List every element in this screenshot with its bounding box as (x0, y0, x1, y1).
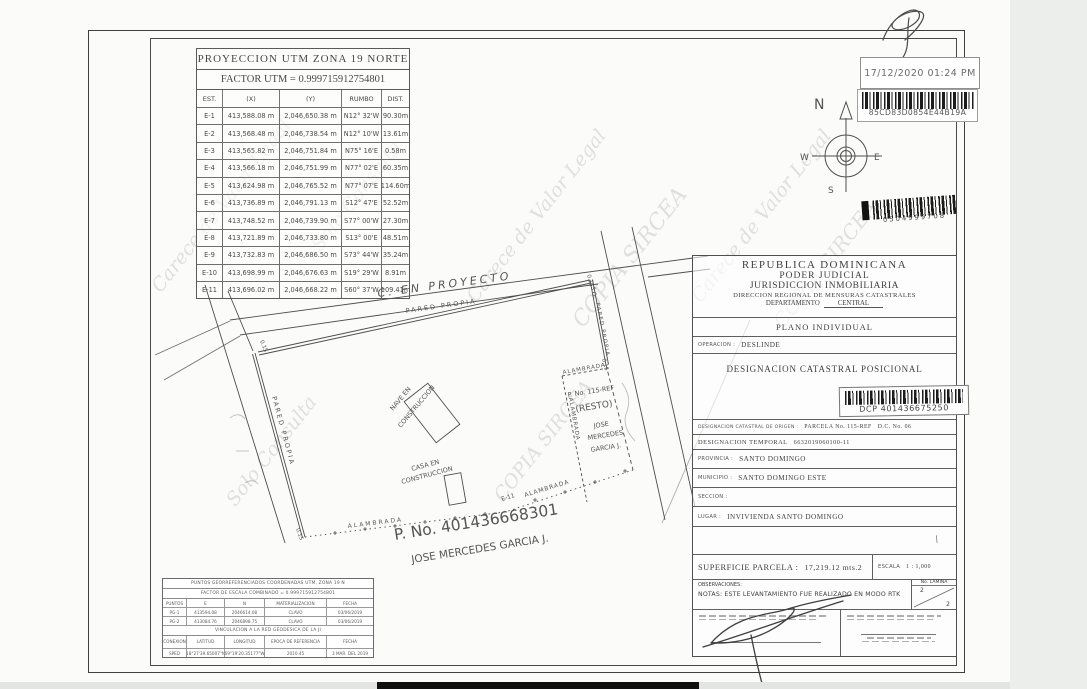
institution-header: REPUBLICA DOMINICANA PODER JUDICIAL JURI… (693, 256, 956, 318)
origen-row: DESIGNACION CATASTRAL DE ORIGEN : PARCEL… (693, 420, 956, 435)
geo-cell: 413594.08 (187, 608, 225, 617)
escala-label: ESCALA (878, 564, 900, 570)
barcode-start-block (861, 201, 869, 220)
geo-cell: 2010.45 (265, 649, 327, 657)
geo-cell: CLAVO (265, 617, 327, 626)
provincia-row: PROVINCIA : SANTO DOMINGO (693, 450, 956, 469)
dcp-section: DESIGNACION CATASTRAL POSICIONAL DCP 401… (693, 354, 956, 420)
seccion-label: SECCION : (698, 494, 727, 500)
scan-artifact-black-bar (377, 682, 699, 689)
street-name-label: C. EN PROYECTO (377, 269, 513, 300)
table-row: E-4413,566.18 m2,046,751.99 mN77° 02'E60… (197, 159, 409, 176)
station-marker-label: E-11 (501, 492, 516, 503)
seccion-row: SECCION : (693, 488, 956, 507)
geo-factor: FACTOR DE ESCALA COMBINADO = 0.999715912… (163, 589, 373, 599)
table-cell: 413,624.98 m (223, 177, 280, 194)
direccion-regional: DIRECCION REGIONAL DE MENSURAS CATASTRAL… (693, 292, 956, 299)
geo-header-row-2: CONEXION LATITUD LONGITUD EPOCA DE REFER… (163, 636, 373, 649)
departamento-value: CENTRAL (824, 300, 883, 308)
table-cell: 2,046,751.84 m (280, 142, 342, 159)
geo-header-cell: PUNTOS (163, 599, 187, 608)
operacion-row: OPERACION : DESLINDE (693, 337, 956, 354)
adjacent-parcel-owner: GARCIA J. (590, 441, 622, 454)
table-cell: 0.58m (382, 142, 409, 159)
geo-band: VINCULACION A LA RED GEODESICA DE LA JI (163, 626, 373, 636)
table-cell: 52.52m (382, 194, 409, 211)
dcp-barcode-sticker: DCP 401436675250 (839, 385, 970, 417)
stray-mark: \ (934, 535, 939, 545)
provincia-value: SANTO DOMINGO (739, 455, 806, 463)
adjacent-parcel-resto: (RESTO) (575, 399, 613, 415)
building-casa (444, 473, 466, 505)
table-cell: 2,046,791.13 m (280, 194, 342, 211)
geo-cell: 3 MAR. DEL 2019 (327, 649, 373, 657)
temporal-label: DESIGNACION TEMPORAL (698, 439, 788, 446)
temporal-row: DESIGNACION TEMPORAL 6632019060100-11 (693, 435, 956, 450)
superficie-label: SUPERFICIE PARCELA : (698, 563, 798, 572)
table-cell: E-3 (197, 142, 223, 159)
column-header: DIST. (382, 90, 409, 107)
escala-cell: ESCALA 1 : 1,000 (873, 555, 956, 579)
utm-table-header: EST. (X) (Y) RUMBO DIST. (197, 90, 409, 107)
temporal-value: 6632019060100-11 (794, 439, 850, 446)
table-cell: N75° 16'E (342, 142, 382, 159)
scan-timestamp-stamp: 17/12/2020 01:24 PM (860, 57, 980, 89)
table-cell: 413,588.08 m (223, 107, 280, 124)
geo-cell: 69°19'20.35177"W (225, 649, 265, 657)
geo-row: PG-2 413084.76 2046898.75 CLAVO 03/06/20… (163, 617, 373, 626)
table-cell: E-6 (197, 194, 223, 211)
origen-dc-value: D.C. No. 06 (878, 424, 912, 430)
geo-cell: 03/06/2019 (327, 608, 373, 617)
scanned-cadastral-plan: Carece de Valor Legal Solo Consulta Care… (0, 0, 1087, 689)
lamina-bottom-value: 2 (946, 601, 950, 608)
adjacent-parcel-ref: P. No. 115-REF (567, 384, 615, 399)
table-cell: N12° 10'W (342, 124, 382, 141)
illegible-fine-print (862, 641, 935, 643)
parcel-survey-drawing: C. EN PROYECTO PARED PROPIA PARED PROPIA… (150, 225, 750, 585)
timestamp-text: 17/12/2020 01:24 PM (864, 68, 976, 79)
geo-cell: 18°27'39.65007"N (187, 649, 225, 657)
adjacent-parcel-owner: JOSE (592, 420, 609, 430)
municipio-row: MUNICIPIO : SANTO DOMINGO ESTE (693, 469, 956, 488)
operacion-value: DESLINDE (741, 341, 780, 349)
column-header: RUMBO (342, 90, 382, 107)
lugar-row: LUGAR : INVIVIENDA SANTO DOMINGO (693, 507, 956, 527)
table-cell: 2,046,738.54 m (280, 124, 342, 141)
adjacent-parcel-owner: MERCEDES (587, 428, 624, 442)
table-cell: 413,736.89 m (223, 194, 280, 211)
table-cell: 2,046,650.38 m (280, 107, 342, 124)
certification-box-right (841, 610, 956, 656)
table-row: E-1413,588.08 m2,046,650.38 mN12° 32'W90… (197, 107, 409, 124)
geo-header-cell: E (187, 599, 225, 608)
illegible-fine-print (847, 615, 941, 617)
illegible-fine-print (867, 637, 931, 639)
compass-south-label: S (828, 186, 834, 196)
geo-header-cell: EPOCA DE REFERENCIA (265, 636, 327, 649)
superficie-row: SUPERFICIE PARCELA : 17,219.12 mts.2 ESC… (693, 555, 956, 580)
geo-header-row: PUNTOS E N MATERIALIZACION FECHA (163, 599, 373, 608)
compass-north-label: N (814, 97, 824, 113)
corner-initials-signature (865, 0, 955, 62)
table-cell: 114.60m (382, 177, 409, 194)
departamento-row: DEPARTAMENTOCENTRAL (693, 300, 956, 307)
illegible-fine-print (847, 619, 932, 621)
fence-label: ALAMBRADA (524, 479, 571, 499)
jurisdiccion: JURISDICCION INMOBILIARIA (693, 281, 956, 291)
table-cell: E-4 (197, 159, 223, 176)
table-row: E-5413,624.98 m2,046,765.52 mN77° 07'E11… (197, 177, 409, 194)
geo-header-cell: MATERIALIZACION (265, 599, 327, 608)
column-header: (Y) (280, 90, 342, 107)
table-cell: 413,565.82 m (223, 142, 280, 159)
plano-individual-row: PLANO INDIVIDUAL (693, 318, 956, 337)
column-header: (X) (223, 90, 280, 107)
geo-cell: 2046614.08 (225, 608, 265, 617)
superficie-value: 17,219.12 mts.2 (804, 563, 862, 572)
geo-header-cell: N (225, 599, 265, 608)
wall-label-right: PARED PROPIA (594, 302, 610, 357)
geo-row: PG-1 413594.08 2046614.08 CLAVO 03/06/20… (163, 608, 373, 617)
table-cell: E-5 (197, 177, 223, 194)
paper-sheet: Carece de Valor Legal Solo Consulta Care… (0, 0, 1010, 682)
table-cell: N77° 07'E (342, 177, 382, 194)
compass-east-label: E (874, 153, 880, 163)
geo-cell: 03/06/2019 (327, 617, 373, 626)
compass-west-label: W (800, 153, 809, 163)
dcp-title: DESIGNACION CATASTRAL POSICIONAL (693, 354, 956, 384)
geo-cell: PG-2 (163, 617, 187, 626)
lugar-value: INVIVIENDA SANTO DOMINGO (727, 513, 843, 521)
operacion-label: OPERACION : (698, 342, 735, 348)
table-cell: E-2 (197, 124, 223, 141)
geo-cell: 2046898.75 (225, 617, 265, 626)
geo-cell: PG-1 (163, 608, 187, 617)
surveyor-signature (693, 585, 858, 689)
municipio-label: MUNICIPIO : (698, 475, 732, 481)
table-cell: 413,568.48 m (223, 124, 280, 141)
escala-value: 1 : 1,000 (906, 564, 931, 570)
country-title: REPUBLICA DOMINICANA (693, 259, 956, 271)
table-row: E-2413,568.48 m2,046,738.54 mN12° 10'W13… (197, 124, 409, 141)
lamina-box: No. LAMINA 2 2 (911, 580, 956, 609)
table-cell: 2,046,765.52 m (280, 177, 342, 194)
table-cell: 90.30m (382, 107, 409, 124)
table-row: E-3413,565.82 m2,046,751.84 mN75° 16'E0.… (197, 142, 409, 159)
empty-row: \ (693, 527, 956, 555)
table-cell: 13.61m (382, 124, 409, 141)
geo-header-cell: FECHA (327, 636, 373, 649)
signature-line (861, 634, 936, 635)
geo-header-cell: FECHA (327, 599, 373, 608)
utm-factor: FACTOR UTM = 0.999715912754801 (197, 70, 409, 90)
table-cell: E-1 (197, 107, 223, 124)
origen-value: PARCELA No. 115-REF (804, 424, 872, 430)
table-cell: N77° 02'E (342, 159, 382, 176)
dcp-title-text: DESIGNACION CATASTRAL POSICIONAL (726, 364, 922, 374)
superficie-cell: SUPERFICIE PARCELA : 17,219.12 mts.2 (693, 555, 873, 579)
poder-judicial: PODER JUDICIAL (693, 271, 956, 281)
plano-title: PLANO INDIVIDUAL (776, 322, 873, 332)
lamina-top-value: 2 (920, 587, 924, 594)
geo-cell: CLAVO (265, 608, 327, 617)
utm-table-title: PROYECCION UTM ZONA 19 NORTE (197, 49, 409, 70)
wall-label-right-prefix: S.O. (589, 286, 597, 298)
geo-header-cell: LATITUD (187, 636, 225, 649)
geo-row-2: SPED 18°27'39.65007"N 69°19'20.35177"W 2… (163, 649, 373, 657)
municipio-value: SANTO DOMINGO ESTE (738, 474, 826, 482)
table-cell: N12° 32'W (342, 107, 382, 124)
geo-header-cell: LONGITUD (225, 636, 265, 649)
geo-header-cell: CONEXION (163, 636, 187, 649)
table-cell: 2,046,751.99 m (280, 159, 342, 176)
georeference-table: PUNTOS GEORREFERENCIADOS COORDENADAS UTM… (162, 578, 374, 658)
provincia-label: PROVINCIA : (698, 456, 733, 462)
departamento-label: DEPARTAMENTO (766, 300, 820, 307)
table-cell: 413,566.18 m (223, 159, 280, 176)
geo-cell: 413084.76 (187, 617, 225, 626)
geo-title: PUNTOS GEORREFERENCIADOS COORDENADAS UTM… (163, 579, 373, 589)
column-header: EST. (197, 90, 223, 107)
table-row: E-6413,736.89 m2,046,791.13 mS12° 47'E52… (197, 194, 409, 211)
lugar-label: LUGAR : (698, 514, 721, 520)
table-cell: S12° 47'E (342, 194, 382, 211)
geo-cell: SPED (163, 649, 187, 657)
table-cell: 60.35m (382, 159, 409, 176)
compass-rose: N W E S (798, 92, 890, 198)
dcp-barcode-text: DCP 401436675250 (859, 403, 949, 414)
fence-label: ALAMBRADA (562, 363, 606, 376)
origen-label: DESIGNACION CATASTRAL DE ORIGEN : (698, 425, 798, 430)
